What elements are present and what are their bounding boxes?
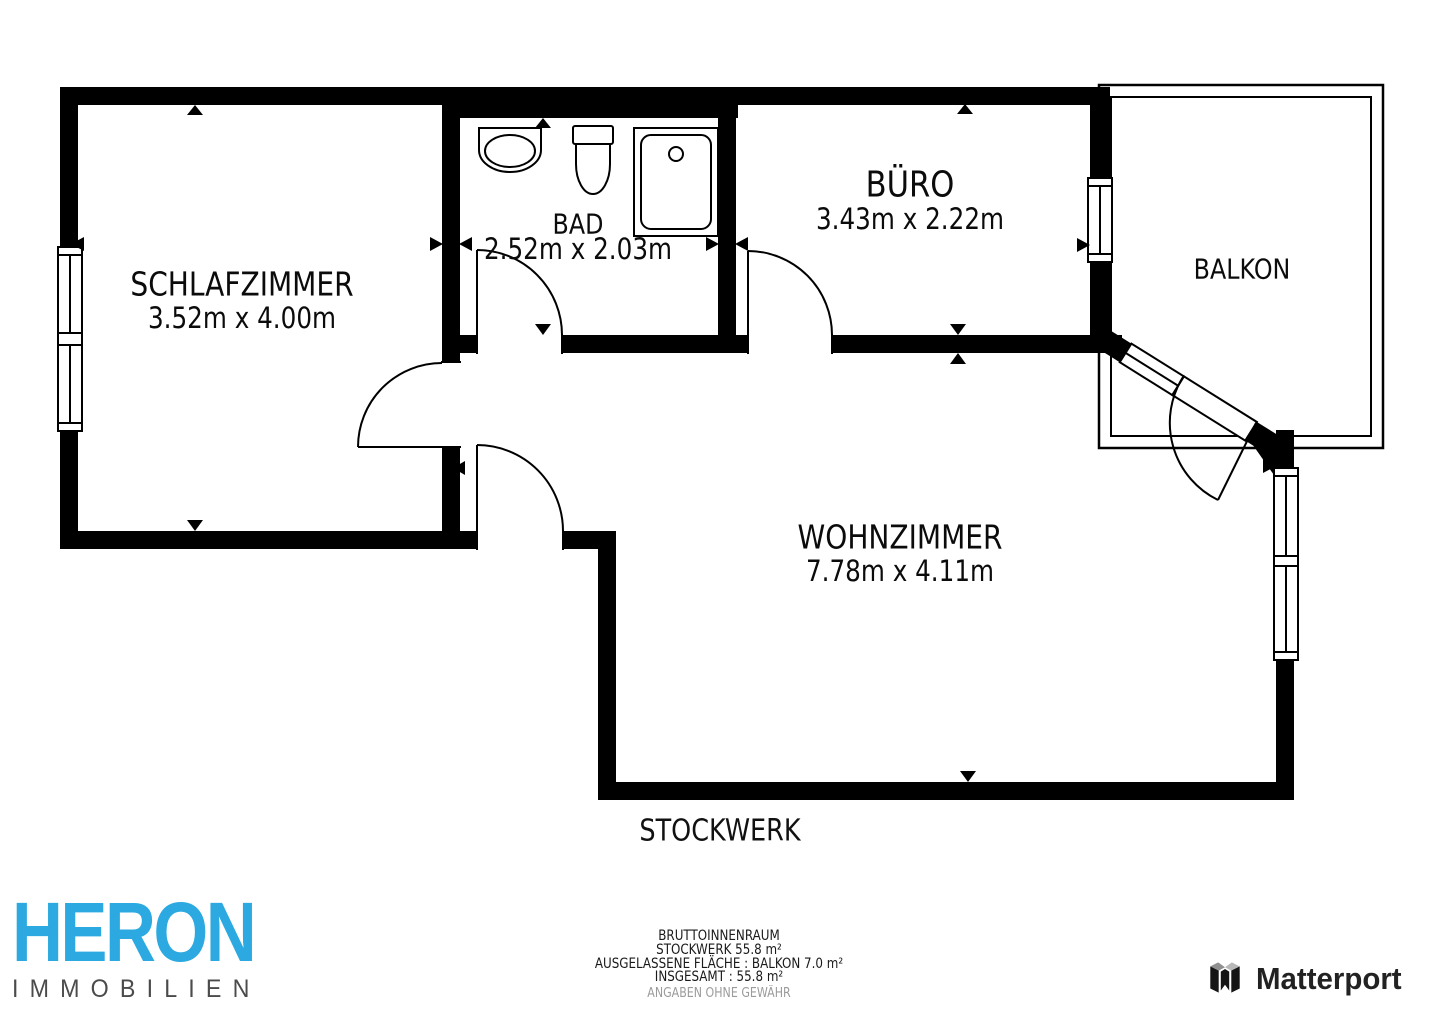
label-wohnzimmer: WOHNZIMMER: [798, 518, 1003, 557]
room-name: BALKON: [1194, 253, 1291, 286]
room-name: WOHNZIMMER: [798, 518, 1003, 557]
dims-buero: 3.43m x 2.22m: [816, 202, 1004, 236]
label-buero: BÜRO: [866, 165, 955, 206]
window-wohnzimmer: [1274, 468, 1298, 660]
summary-line: INSGESAMT : 55.8 m²: [595, 971, 843, 985]
heron-wordmark: HERON: [12, 898, 254, 966]
toilet-icon: [573, 126, 613, 194]
dims-schlafzimmer: 3.52m x 4.00m: [148, 301, 336, 335]
room-name: BÜRO: [866, 165, 955, 206]
door-buero: [747, 251, 833, 354]
window-schlafzimmer: [58, 247, 82, 431]
dims-bad: 2.52m x 2.03m: [484, 232, 672, 266]
plan-title: STOCKWERK: [639, 814, 800, 849]
matterport-wordmark: Matterport: [1256, 961, 1402, 997]
heron-subtitle: IMMOBILIEN: [12, 975, 280, 1004]
window-buero: [1088, 178, 1112, 262]
sink-icon: [479, 128, 541, 172]
room-name: SCHLAFZIMMER: [130, 265, 353, 304]
floor-plan-canvas: [0, 0, 1440, 1018]
matterport-icon: [1204, 958, 1246, 1000]
floorplan-page: SCHLAFZIMMER 3.52m x 4.00m BAD 2.52m x 2…: [0, 0, 1440, 1018]
dims-wohnzimmer: 7.78m x 4.11m: [806, 554, 994, 588]
heron-logo: HERON IMMOBILIEN: [12, 898, 300, 1004]
door-entry: [476, 445, 564, 550]
shower-icon: [634, 128, 718, 236]
area-summary: BRUTTOINNENRAUM STOCKWERK 55.8 m² AUSGEL…: [573, 930, 865, 1001]
label-balkon: BALKON: [1194, 253, 1291, 286]
matterport-logo: Matterport: [1204, 958, 1409, 1000]
label-schlafzimmer: SCHLAFZIMMER: [130, 265, 353, 304]
disclaimer: ANGABEN OHNE GEWÄHR: [595, 987, 843, 1001]
door-schlafzimmer: [358, 361, 461, 448]
